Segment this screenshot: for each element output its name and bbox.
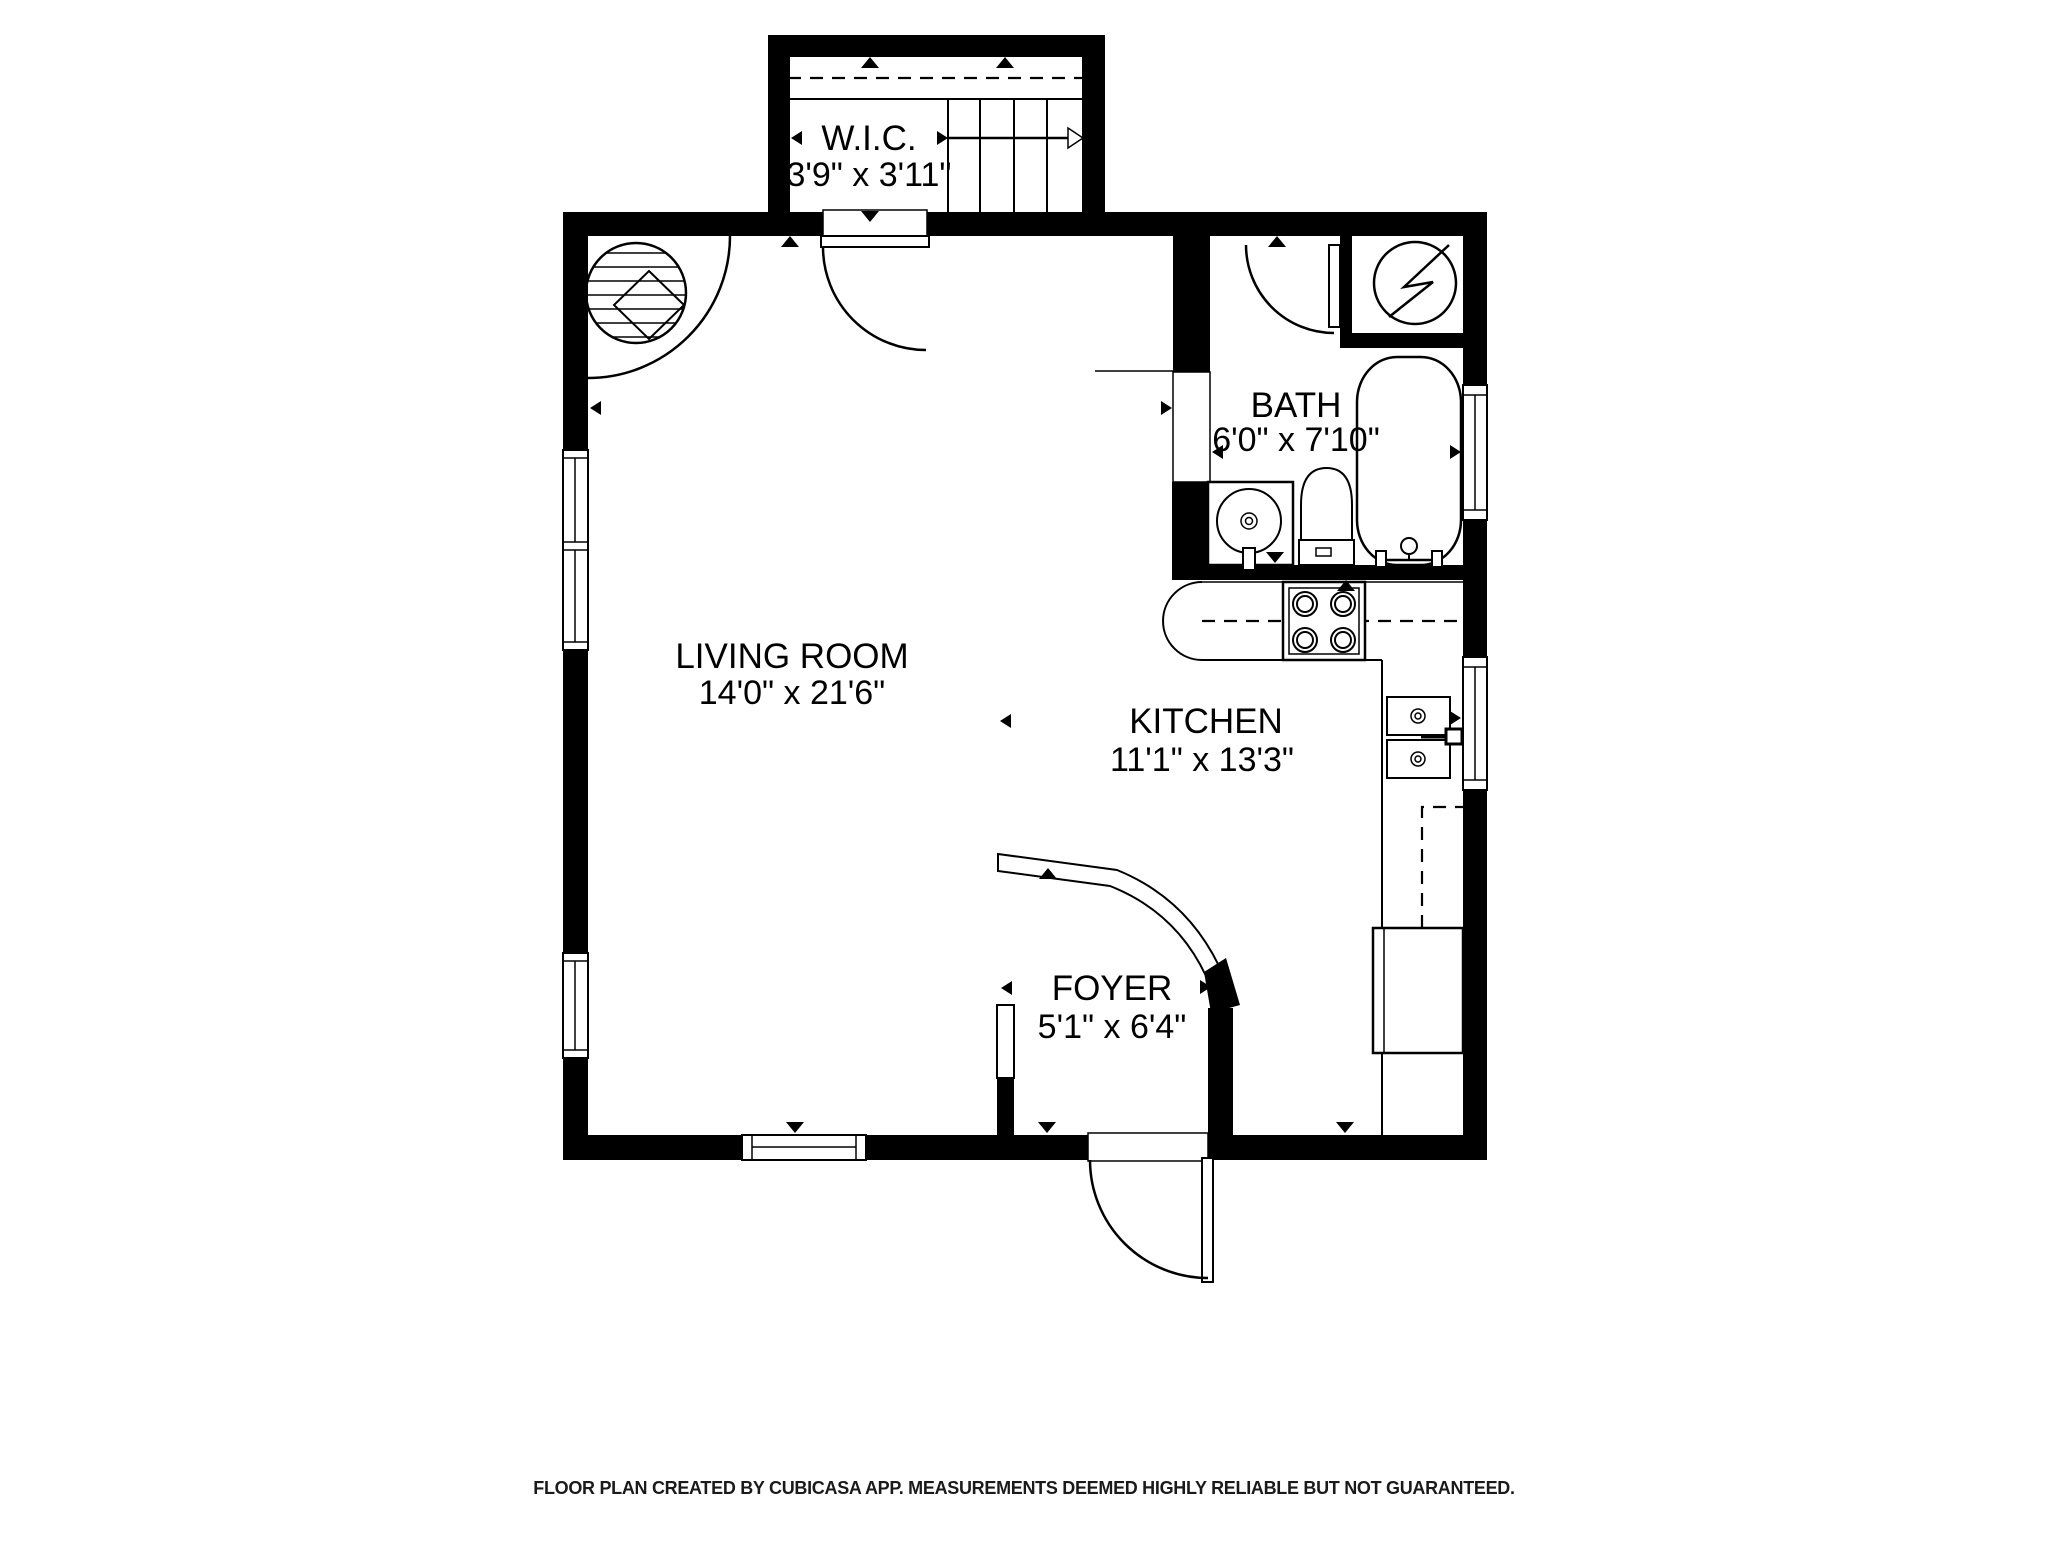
marker-up-icon: [996, 57, 1014, 68]
floor-plan-svg: W.I.C. 3'9" x 3'11" BATH 6'0" x 7'10" LI…: [0, 0, 2048, 1536]
foyer-half-wall: [997, 1005, 1014, 1078]
marker-up-icon: [861, 57, 879, 68]
window-left-single: [563, 953, 588, 1058]
foyer-curved-wall: [998, 854, 1219, 976]
upper-cabinet-dashed-box: [1422, 807, 1463, 928]
window-bottom: [742, 1135, 866, 1160]
wood-stove-icon: [586, 243, 686, 343]
footer-disclaimer: FLOOR PLAN CREATED BY CUBICASA APP. MEAS…: [0, 1478, 2048, 1499]
stove-cooktop: [1283, 582, 1365, 660]
room-label-living-room: LIVING ROOM: [675, 637, 908, 676]
marker-down-icon: [1038, 1122, 1056, 1133]
stairs-direction-arrowhead-icon: [1068, 128, 1083, 148]
marker-right-icon: [1161, 401, 1172, 415]
room-dims-living-room: 14'0" x 21'6": [699, 674, 885, 712]
water-heater-closet-door-arc: [1246, 245, 1334, 333]
bath-entry-opening: [1173, 372, 1210, 482]
marker-left-icon: [1000, 714, 1011, 728]
marker-right-icon: [937, 131, 948, 145]
room-label-bath: BATH: [1251, 386, 1342, 425]
marker-left-icon: [590, 401, 601, 415]
room-dims-wic: 3'9" x 3'11": [786, 156, 951, 194]
room-dims-kitchen: 11'1" x 13'3": [1110, 741, 1294, 779]
room-dims-foyer: 5'1" x 6'4": [1038, 1008, 1187, 1046]
marker-up-icon: [1268, 236, 1286, 247]
wall-wic-top: [768, 35, 1105, 57]
room-dims-bath: 6'0" x 7'10": [1212, 421, 1380, 459]
marker-right-icon: [1450, 711, 1461, 725]
wall-closet-left: [1340, 236, 1352, 335]
room-label-wic: W.I.C.: [821, 119, 916, 158]
window-left-double: [563, 450, 588, 650]
kitchen-sink: [1387, 697, 1462, 778]
front-door-swing-arc: [1090, 1160, 1208, 1278]
window-kitchen-right: [1463, 657, 1487, 790]
room-label-foyer: FOYER: [1052, 969, 1173, 1008]
wall-top: [563, 212, 1487, 236]
front-door-leaf: [1202, 1158, 1213, 1282]
water-heater-icon: [1374, 242, 1456, 324]
wic-door-swing-arc: [823, 247, 926, 350]
wall-bath-left-upper: [1173, 236, 1210, 372]
room-label-kitchen: KITCHEN: [1129, 702, 1283, 741]
marker-down-icon: [1336, 1122, 1354, 1133]
marker-left-icon: [1001, 981, 1012, 995]
marker-left-icon: [791, 131, 802, 145]
bathroom-sink: [1208, 482, 1293, 570]
foyer-side-wall: [1208, 1008, 1233, 1135]
wall-bottom: [563, 1135, 1487, 1160]
wic-door-leaf: [821, 236, 929, 247]
bathtub: [1357, 357, 1461, 567]
wall-wic-right: [1082, 35, 1105, 212]
refrigerator: [1373, 928, 1463, 1053]
window-bath-right: [1463, 385, 1487, 520]
wall-foyer-stub: [997, 1078, 1014, 1135]
toilet: [1299, 468, 1354, 565]
foyer-structure: [997, 854, 1240, 1282]
wall-closet-bottom: [1340, 333, 1463, 348]
marker-up-icon: [781, 236, 799, 247]
floor-plan: W.I.C. 3'9" x 3'11" BATH 6'0" x 7'10" LI…: [0, 0, 2048, 1541]
front-door-opening: [1088, 1133, 1208, 1161]
marker-down-icon: [786, 1122, 804, 1133]
water-heater-closet-door-leaf: [1329, 245, 1340, 327]
living-room-corner-door-arc: [588, 236, 730, 378]
wall-bath-left-lower: [1172, 482, 1208, 580]
